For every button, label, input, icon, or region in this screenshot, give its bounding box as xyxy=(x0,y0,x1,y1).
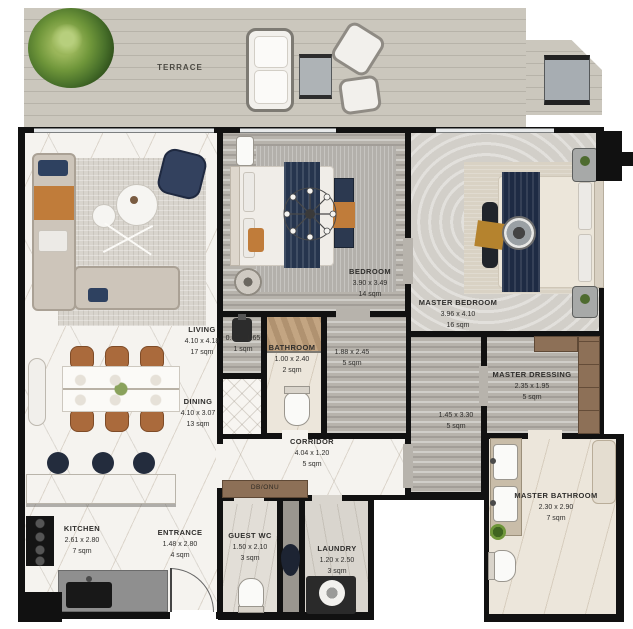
coffee-table-decor-icon xyxy=(130,196,138,204)
kitchen-sink xyxy=(66,582,112,608)
vanity-faucet-icon xyxy=(490,500,496,506)
sofa-pillow xyxy=(88,288,108,302)
db-onu-cabinet: DB/ONU xyxy=(222,480,308,498)
wall-corner-bottom-left xyxy=(18,592,62,622)
door-opening-master-bathroom xyxy=(528,430,562,439)
entrance-door-leaf-icon xyxy=(170,568,172,612)
bed-cushion xyxy=(248,228,264,252)
vanity-faucet-icon xyxy=(490,458,496,464)
toilet-tank-icon xyxy=(488,552,495,580)
kitchen-island xyxy=(26,474,176,504)
bed-headboard xyxy=(230,166,240,266)
bed-pillow xyxy=(243,172,255,212)
master-ceiling-light-icon xyxy=(502,216,536,250)
room-hall xyxy=(322,312,412,438)
bedroom-side-table xyxy=(236,136,254,166)
label-db-onu: DB/ONU xyxy=(223,481,307,495)
door-opening-bedroom-hall xyxy=(336,309,370,318)
label-kitchen: KITCHEN 2.61 x 2.80 7 sqm xyxy=(40,523,124,557)
master-bed-pillow xyxy=(578,182,592,230)
label-master-dressing: MASTER DRESSING 2.35 x 1.95 5 sqm xyxy=(478,369,586,403)
outdoor-sofa-cushion xyxy=(254,70,288,104)
sofa-pillow xyxy=(38,230,68,252)
window-bedroom xyxy=(240,128,336,133)
bathroom-plant-icon xyxy=(490,524,506,540)
toilet xyxy=(492,550,516,582)
label-corridor: CORRIDOR 4.04 x 1.20 5 sqm xyxy=(268,436,356,470)
outdoor-coffee-table xyxy=(299,54,332,99)
outdoor-sofa-cushion xyxy=(254,36,288,68)
outdoor-side-table xyxy=(544,55,590,105)
chandelier-icon xyxy=(280,184,340,244)
bar-stool xyxy=(133,452,155,474)
wardrobe-top xyxy=(534,336,578,352)
water-heater-pipe-icon xyxy=(238,314,246,320)
plant-highlight-icon xyxy=(50,24,84,54)
floor-plan: TERRACE xyxy=(0,0,633,629)
door-opening-corridor-masterhall xyxy=(403,444,413,488)
dining-bench xyxy=(28,358,46,426)
dining-chair xyxy=(105,346,129,368)
toilet xyxy=(284,392,310,426)
toilet-tank-icon xyxy=(238,606,264,613)
label-entrance: ENTRANCE 1.48 x 2.80 4 sqm xyxy=(136,527,224,561)
dining-chair xyxy=(70,410,94,432)
toilet-tank-icon xyxy=(284,386,310,394)
bar-stool xyxy=(47,452,69,474)
nightstand-plant-icon xyxy=(580,294,590,304)
label-guest-wc: GUEST WC 1.50 x 2.10 3 sqm xyxy=(217,530,283,564)
label-master-hall: 1.45 x 3.30 5 sqm xyxy=(414,410,498,432)
label-master-bedroom: MASTER BEDROOM 3.96 x 4.10 16 sqm xyxy=(404,297,512,331)
label-master-bathroom: MASTER BATHROOM 2.30 x 2.90 7 sqm xyxy=(500,490,612,524)
wall-masterhall-bottom xyxy=(406,492,486,500)
dining-chair xyxy=(70,346,94,368)
sofa-pillow xyxy=(38,160,68,176)
nightstand-plant-icon xyxy=(580,156,590,166)
label-laundry: LAUNDRY 1.20 x 2.50 3 sqm xyxy=(295,543,379,577)
wall-stub-top-right xyxy=(612,152,633,166)
label-bedroom: BEDROOM 3.90 x 3.49 14 sqm xyxy=(318,266,422,300)
dining-chair xyxy=(105,410,129,432)
window-master-bedroom xyxy=(436,128,554,133)
sofa-throw xyxy=(34,186,74,220)
window-living xyxy=(34,128,214,133)
outdoor-armchair xyxy=(338,74,383,115)
bar-stool xyxy=(92,452,114,474)
master-bed-pillow xyxy=(578,234,592,282)
label-hall: 1.88 x 2.45 5 sqm xyxy=(310,347,394,369)
bedroom-plant-pot-icon xyxy=(234,268,262,296)
kitchen-faucet-icon xyxy=(86,576,92,582)
vanity-sink xyxy=(493,444,518,480)
master-bed-headboard xyxy=(594,176,604,288)
label-dining: DINING 4.10 x 3.07 13 sqm xyxy=(156,396,240,430)
washing-machine-drum-icon xyxy=(319,580,345,606)
label-terrace: TERRACE xyxy=(140,63,220,72)
coffee-table-large xyxy=(116,184,158,226)
door-opening-laundry xyxy=(312,495,342,504)
master-bench-throw xyxy=(474,220,505,250)
